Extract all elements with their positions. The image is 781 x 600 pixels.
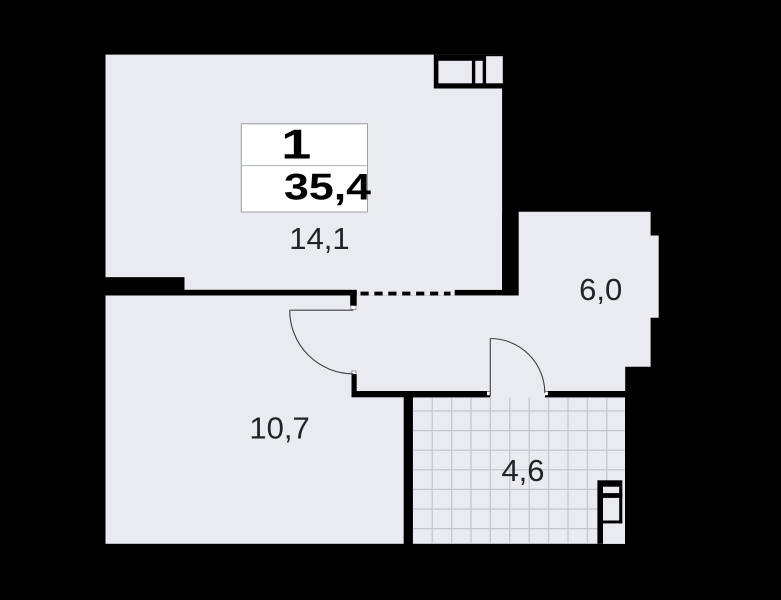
- svg-text:4,6: 4,6: [501, 453, 544, 488]
- svg-text:1: 1: [281, 121, 311, 168]
- svg-text:6,0: 6,0: [579, 272, 622, 307]
- svg-text:10,7: 10,7: [249, 411, 309, 446]
- svg-text:35,4: 35,4: [284, 167, 372, 208]
- svg-text:14,1: 14,1: [289, 221, 349, 256]
